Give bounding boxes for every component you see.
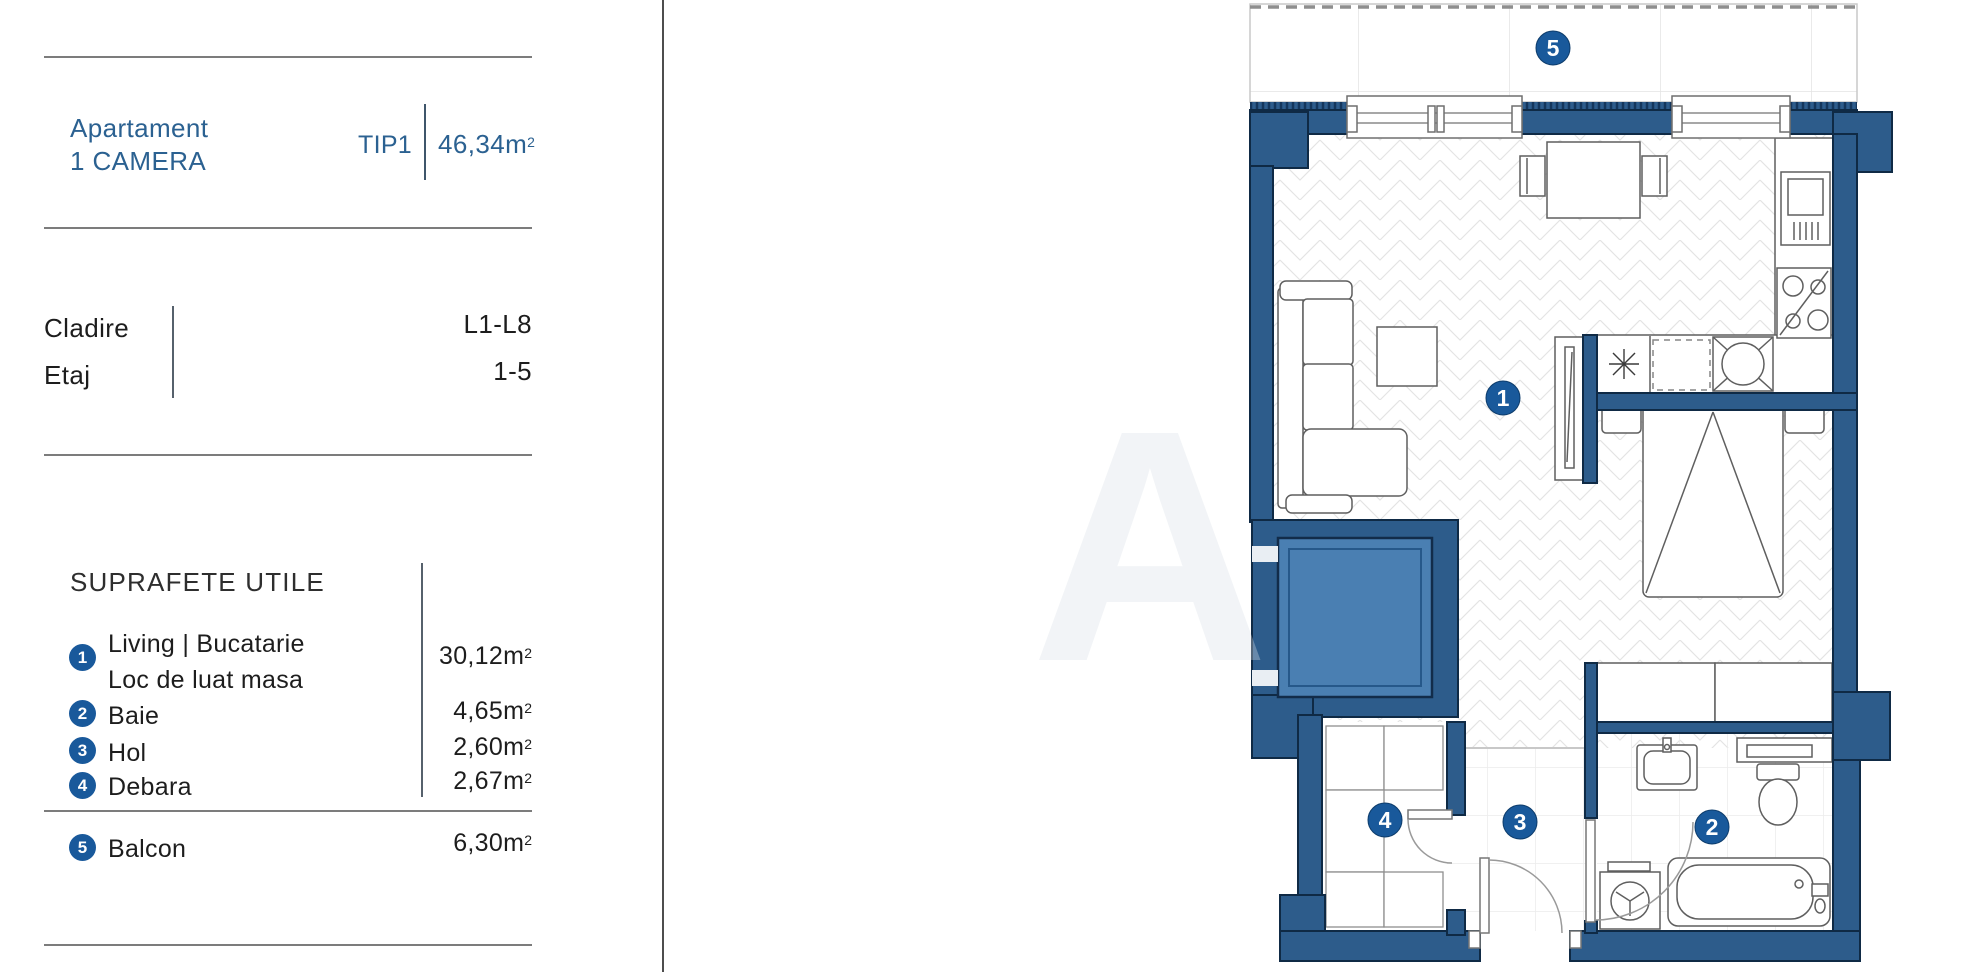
legend-room-4: Debara bbox=[108, 773, 192, 802]
wall-bath-stub-bottom bbox=[1585, 921, 1597, 933]
type-label: TIP1 bbox=[358, 131, 412, 160]
svg-text:4: 4 bbox=[1379, 807, 1392, 833]
floor-value: 1-5 bbox=[380, 356, 532, 387]
svg-text:1: 1 bbox=[1497, 385, 1510, 411]
legend-badge-3: 3 bbox=[69, 737, 96, 764]
legend-room-5: Balcon bbox=[108, 835, 186, 864]
bathtub-icon bbox=[1668, 858, 1830, 926]
legend-badge-2: 2 bbox=[69, 700, 96, 727]
areas-section-title: SUPRAFETE UTILE bbox=[70, 567, 325, 598]
legend-room-1-line1: Living | Bucatarie bbox=[108, 626, 305, 662]
apartment-title-line2: 1 CAMERA bbox=[70, 145, 208, 178]
legend-room-3: Hol bbox=[108, 739, 146, 768]
elevator-cab bbox=[1252, 538, 1432, 697]
apartment-title-line1: Apartament bbox=[70, 112, 208, 145]
pillar-top-left bbox=[1250, 112, 1308, 168]
plan-badge-1: 1 bbox=[1486, 381, 1520, 415]
building-label: Cladire bbox=[44, 313, 129, 344]
tv-unit bbox=[1555, 337, 1583, 480]
floor-plan: A bbox=[980, 0, 1980, 972]
apartment-title: Apartament 1 CAMERA bbox=[70, 112, 208, 178]
legend-area-2: 4,65m2 bbox=[400, 697, 532, 726]
bath-sink-icon bbox=[1637, 738, 1697, 790]
page-divider bbox=[662, 0, 664, 972]
hall-floor bbox=[1447, 748, 1587, 931]
legend-area-4: 2,67m2 bbox=[400, 767, 532, 796]
building-separator bbox=[172, 306, 174, 398]
wall-right bbox=[1833, 134, 1857, 692]
divider-rule-4 bbox=[44, 810, 532, 812]
apartment-sheet: Apartament 1 CAMERA TIP1 46,34m2 Cladire… bbox=[0, 0, 1980, 972]
window-kitchen bbox=[1672, 96, 1790, 138]
wall-bottom-right bbox=[1570, 931, 1860, 961]
coffee-table bbox=[1377, 327, 1437, 386]
stove-icon bbox=[1777, 268, 1831, 338]
legend-badge-1: 1 bbox=[69, 644, 96, 671]
wall-bath-top bbox=[1597, 722, 1833, 733]
pillar-right-bath bbox=[1833, 692, 1890, 760]
legend-room-2: Baie bbox=[108, 702, 159, 731]
divider-rule-3 bbox=[44, 454, 532, 456]
watermark-letter-over: A bbox=[1031, 361, 1269, 730]
legend-room-1-line2: Loc de luat masa bbox=[108, 662, 305, 698]
plan-badge-5: 5 bbox=[1536, 31, 1570, 65]
svg-text:3: 3 bbox=[1514, 809, 1527, 835]
wall-storage-stub-bottom bbox=[1447, 910, 1465, 935]
svg-text:2: 2 bbox=[1706, 814, 1719, 840]
legend-badge-5: 5 bbox=[69, 834, 96, 861]
toilet-icon bbox=[1757, 764, 1799, 825]
legend-badge-4: 4 bbox=[69, 772, 96, 799]
light-symbol-icon bbox=[1609, 349, 1639, 379]
wardrobe bbox=[1597, 663, 1832, 722]
legend-room-1: Living | Bucatarie Loc de luat masa bbox=[108, 626, 305, 698]
plan-badge-4: 4 bbox=[1368, 803, 1402, 837]
legend-area-1: 30,12m2 bbox=[400, 642, 532, 671]
divider-rule-bottom bbox=[44, 944, 532, 946]
plan-badge-2: 2 bbox=[1695, 810, 1729, 844]
kitchen-sink-icon bbox=[1713, 337, 1773, 391]
building-value: L1-L8 bbox=[380, 309, 532, 340]
legend-area-3: 2,60m2 bbox=[400, 733, 532, 762]
fridge-icon bbox=[1781, 172, 1830, 245]
legend-area-5: 6,30m2 bbox=[400, 829, 532, 858]
divider-rule-top bbox=[44, 56, 532, 58]
svg-text:5: 5 bbox=[1547, 35, 1560, 61]
plan-badge-3: 3 bbox=[1503, 805, 1537, 839]
window-living bbox=[1347, 96, 1522, 138]
divider-rule-2b bbox=[44, 227, 532, 229]
wall-storage-stub-top bbox=[1447, 722, 1465, 815]
wall-bath-stub-top bbox=[1585, 663, 1597, 818]
wall-right-lower bbox=[1833, 760, 1860, 935]
floor-label: Etaj bbox=[44, 360, 90, 391]
wall-tv-stub bbox=[1583, 335, 1597, 483]
type-area-separator bbox=[424, 104, 426, 180]
bath-shelf bbox=[1737, 738, 1832, 762]
wall-bed-partition bbox=[1593, 393, 1857, 410]
total-area: 46,34m2 bbox=[438, 129, 535, 160]
